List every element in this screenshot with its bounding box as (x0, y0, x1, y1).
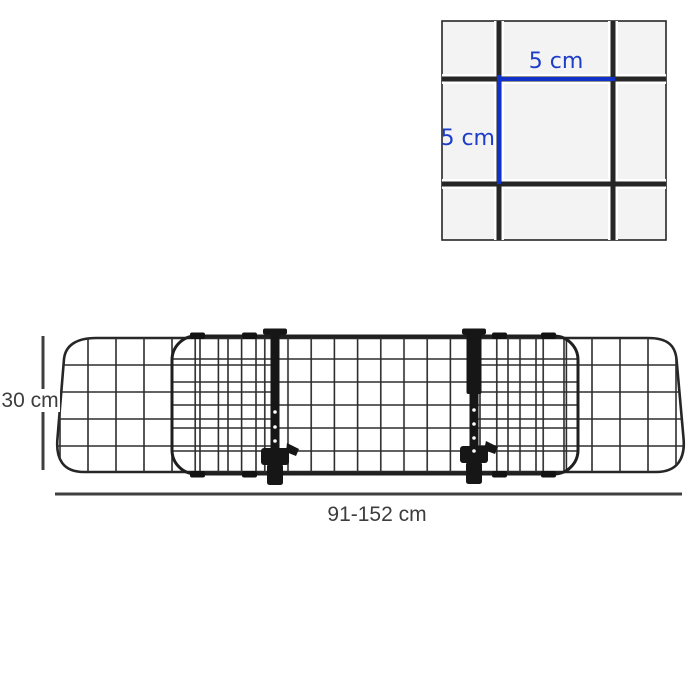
clamp-foot (466, 462, 482, 484)
barrier-illustration (40, 329, 695, 495)
panel-clip (541, 471, 556, 478)
strap-hole (472, 408, 476, 412)
diagram-canvas (0, 0, 700, 700)
strap-hole (472, 436, 476, 440)
strap-hole (273, 410, 277, 414)
panel-clip (190, 333, 205, 340)
panel-clip (242, 471, 257, 478)
strap-hole (273, 439, 277, 443)
cell-width-label: 5 cm (499, 50, 613, 74)
product-dimension-diagram: 5 cm 5 cm 30 cm 91-152 cm (0, 0, 700, 700)
panel-clip (242, 333, 257, 340)
inner-sliding-panel (172, 336, 578, 474)
strap-clamp (460, 446, 488, 463)
strap-hole (273, 425, 277, 429)
panel-clip (492, 471, 507, 478)
panel-clip (190, 471, 205, 478)
barrier-height-label: 30 cm (0, 389, 60, 412)
strap-hole (472, 422, 476, 426)
panel-clip (492, 333, 507, 340)
barrier-width-label: 91-152 cm (277, 503, 477, 526)
strap-hole (472, 449, 476, 453)
strap-clamp (261, 448, 289, 465)
clamp-foot (267, 464, 283, 485)
cell-height-label: 5 cm (433, 127, 495, 151)
panel-clip (541, 333, 556, 340)
